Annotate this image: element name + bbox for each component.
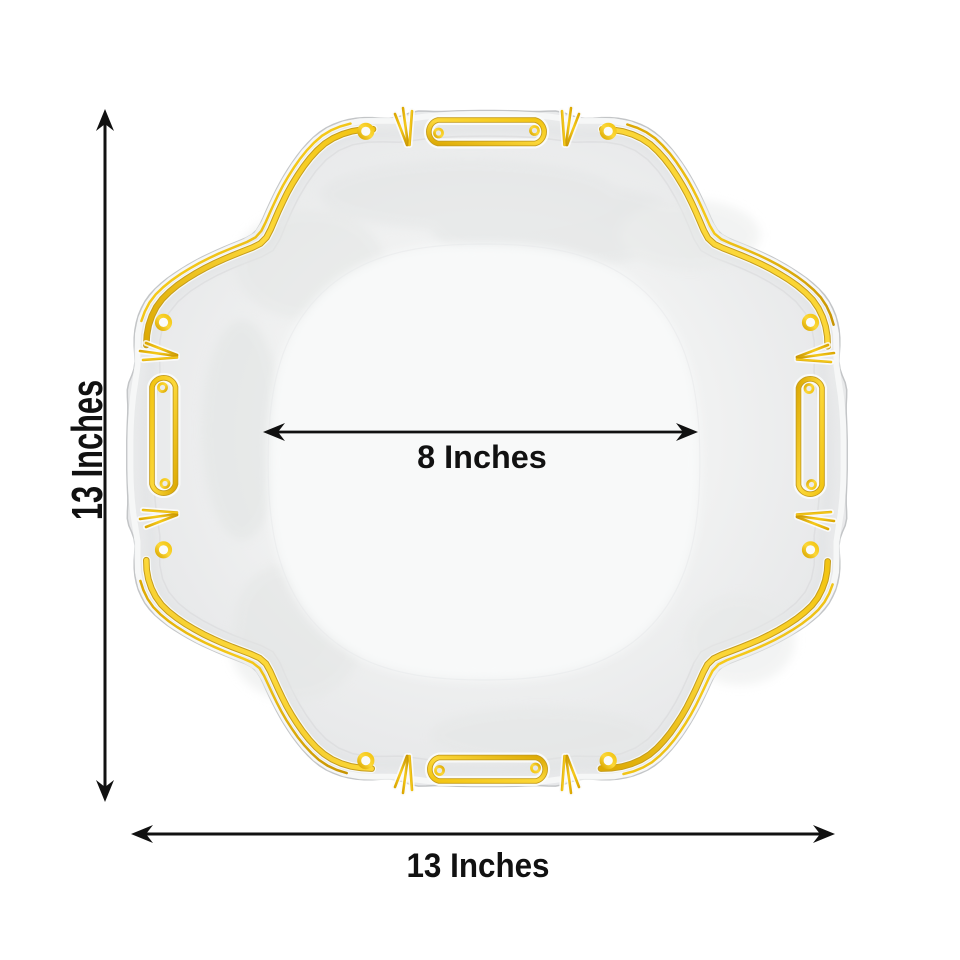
svg-text:13 Inches: 13 Inches <box>64 380 113 520</box>
svg-text:8 Inches: 8 Inches <box>417 439 547 475</box>
svg-text:13 Inches: 13 Inches <box>406 846 549 885</box>
